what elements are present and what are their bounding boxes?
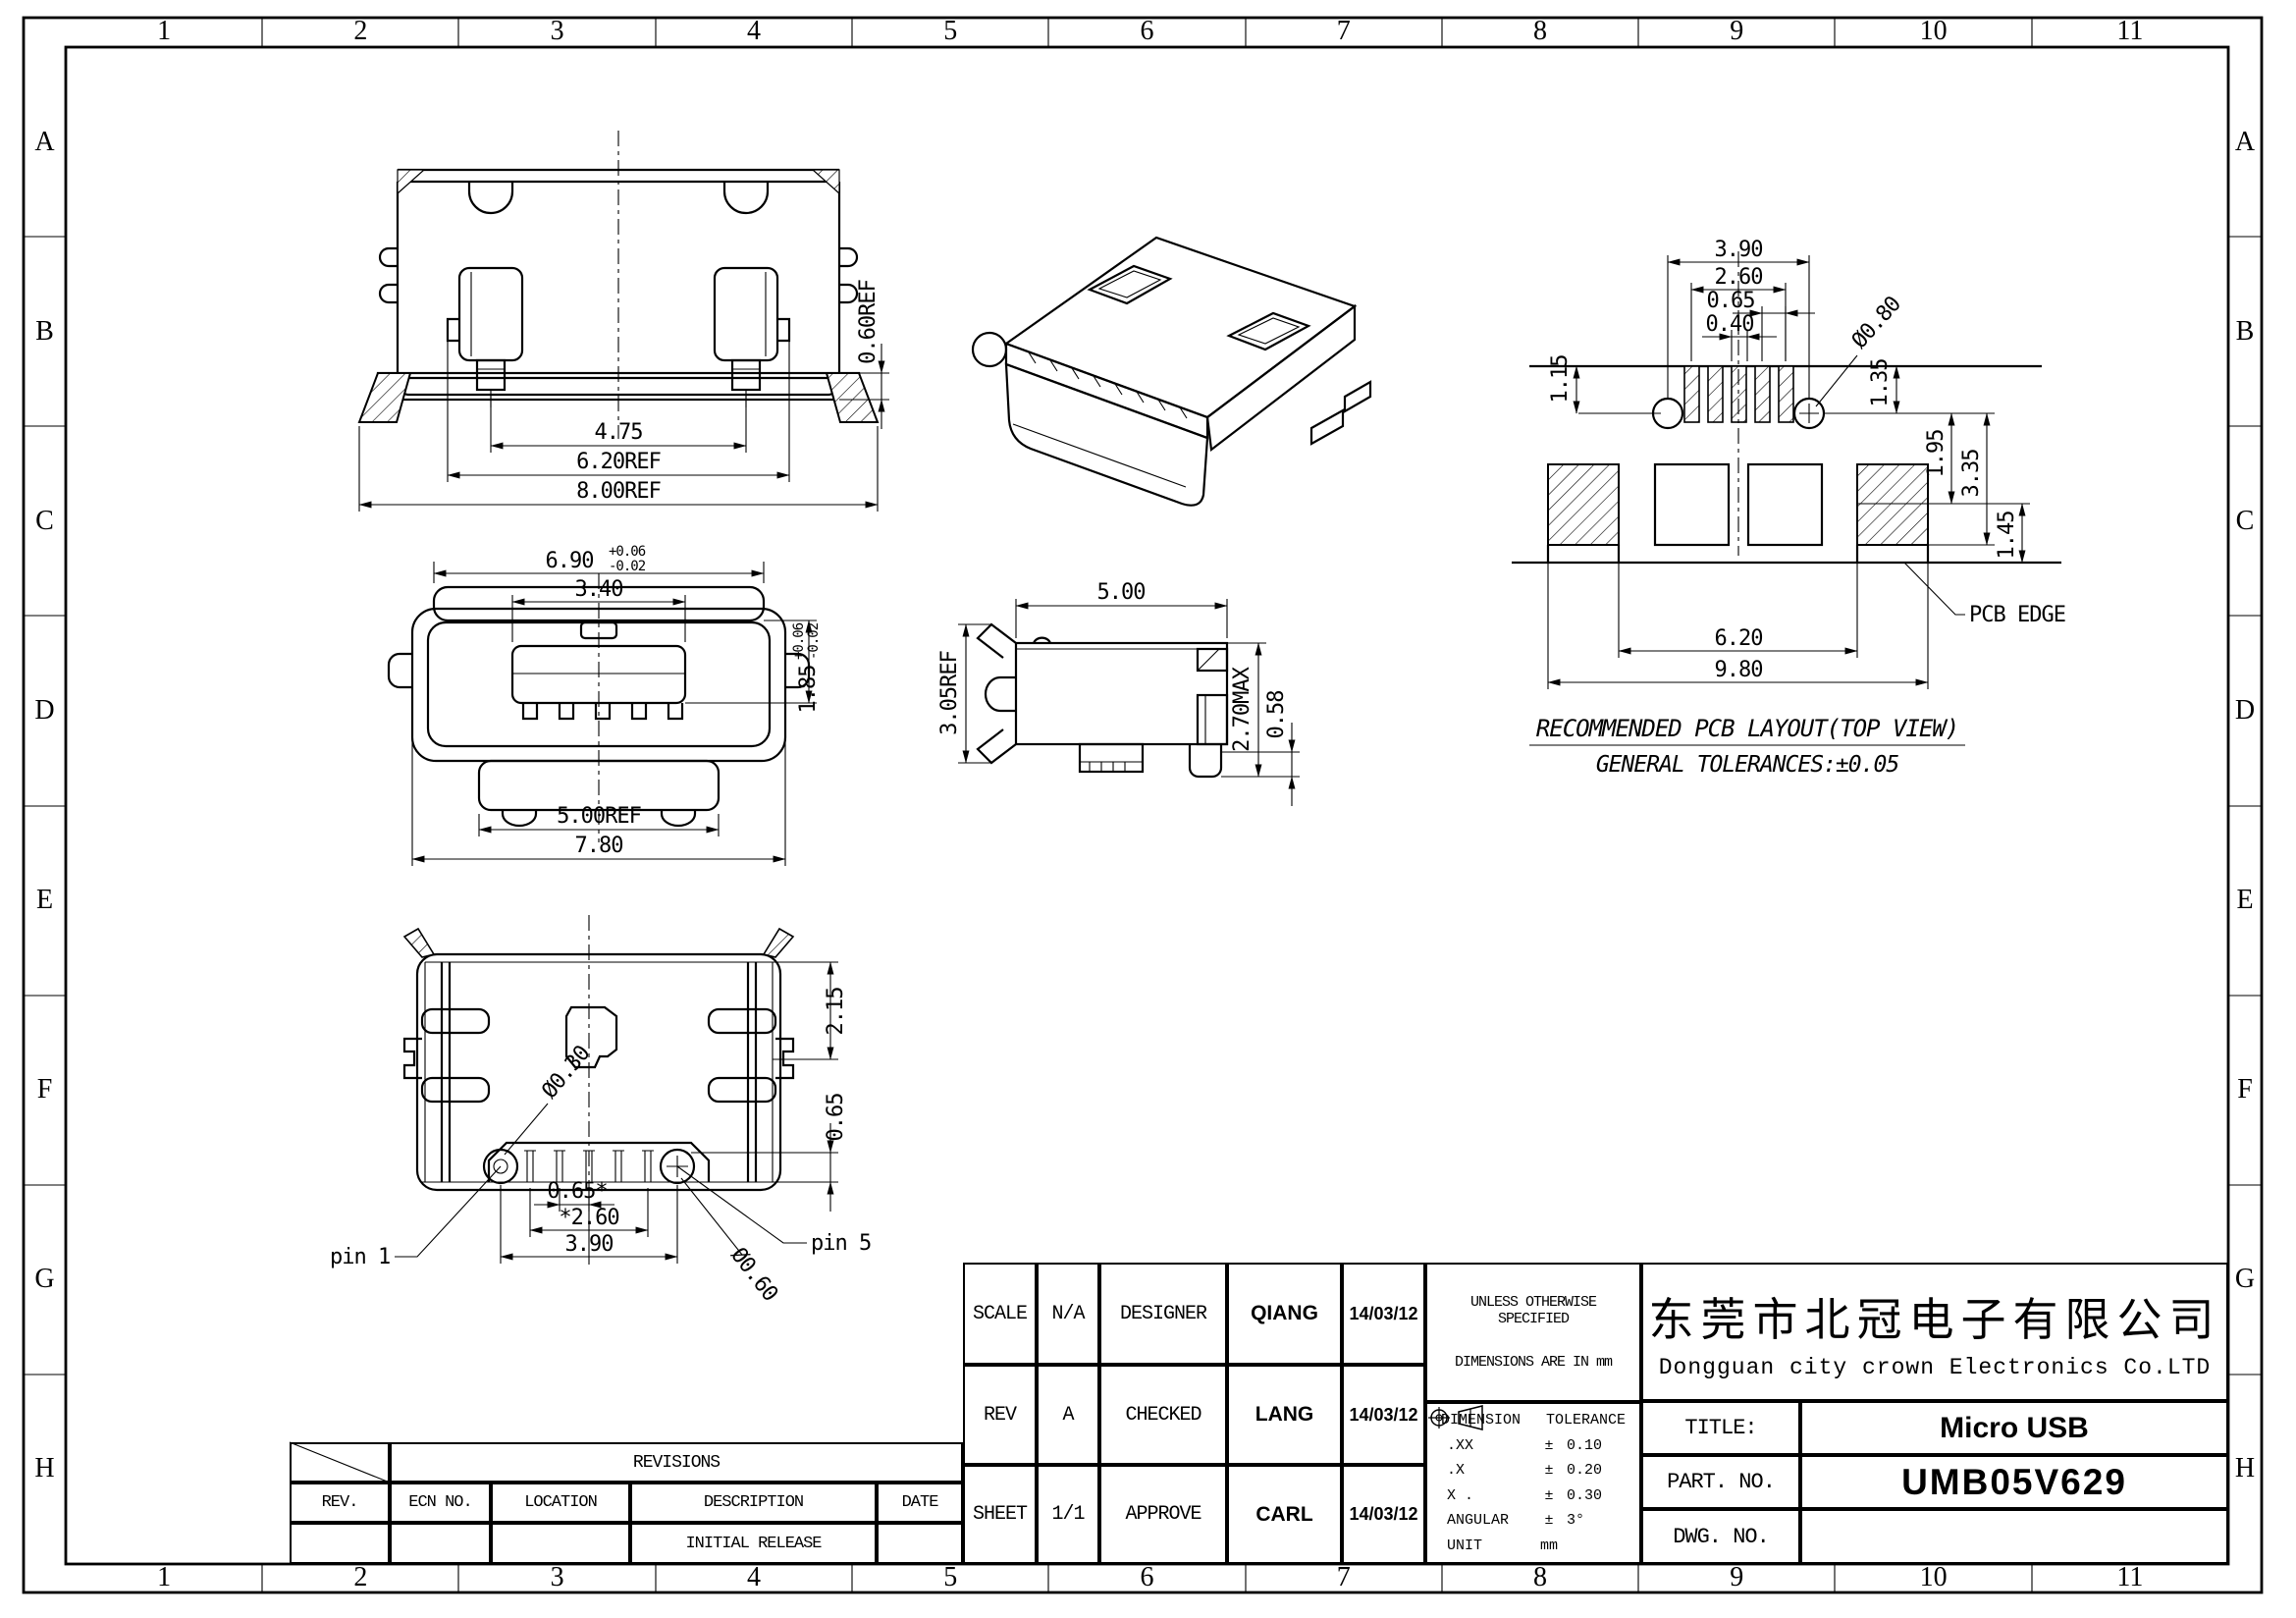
pcb-dim-pad-top: 1.95 xyxy=(1924,430,1949,478)
grid-col-bottom-11: 11 xyxy=(2032,1563,2228,1592)
side-dim-max-height: 2.70MAX xyxy=(1230,666,1255,751)
grid-col-bottom-9: 9 xyxy=(1638,1563,1835,1592)
mating-dim-height-tol-plus: +0.06 xyxy=(791,622,807,660)
grid-col-bottom-3: 3 xyxy=(459,1563,656,1592)
grid-col-bottom-2: 2 xyxy=(262,1563,458,1592)
bottom-dim-holes-span: 3.90 xyxy=(565,1232,614,1257)
side-dim-depth: 5.00 xyxy=(1097,580,1146,605)
tol-row: .XX ± 0.10 xyxy=(1435,1437,1631,1454)
mating-dim-shell-width: 6.90 xyxy=(546,549,594,573)
bottom-dim-shell: 2.15 xyxy=(824,988,848,1036)
pcb-tolerance-note: GENERAL TOLERANCES:±0.05 xyxy=(1596,752,1898,778)
designer-date: 14/03/12 xyxy=(1342,1263,1425,1365)
bottom-pin1-label: pin 1 xyxy=(330,1245,390,1269)
tol-sign: ± xyxy=(1531,1512,1567,1529)
grid-row-right-B: B xyxy=(2228,237,2262,426)
grid-col-bottom-1: 1 xyxy=(66,1563,262,1592)
rev-label: REV xyxy=(963,1365,1037,1465)
grid-row-left-G: G xyxy=(24,1185,66,1375)
sheet-value: 1/1 xyxy=(1037,1465,1099,1564)
scale-value: N/A xyxy=(1037,1263,1099,1365)
revisions-col-description: DESCRIPTION xyxy=(630,1483,877,1523)
tol-sign: ± xyxy=(1531,1437,1567,1454)
bottom-pin5-label: pin 5 xyxy=(811,1231,871,1256)
tol-row: .X ± 0.20 xyxy=(1435,1462,1631,1479)
company-name-en: Dongguan city crown Electronics Co.LTD xyxy=(1659,1355,2212,1380)
grid-col-top-2: 2 xyxy=(262,16,458,47)
pcb-dim-pad-bottom: 3.35 xyxy=(1959,450,1984,498)
grid-row-right-C: C xyxy=(2228,426,2262,616)
view-side: 5.00 3.05REF 2.70MAX 0.58 xyxy=(937,580,1300,806)
grid-col-bottom-8: 8 xyxy=(1442,1563,1638,1592)
tol-value: 0.10 xyxy=(1567,1437,1631,1454)
front-dim-inner-width: 6.20REF xyxy=(576,450,661,474)
b bottom-dim-pitch: 0.65* xyxy=(547,1179,607,1204)
pcb-dim-edge-gap: 1.45 xyxy=(1995,512,2019,560)
revision-row-location xyxy=(491,1523,630,1564)
tol-row: X . ± 0.30 xyxy=(1435,1487,1631,1504)
grid-col-top-8: 8 xyxy=(1442,16,1638,47)
tol-dim-xx: .XX xyxy=(1435,1437,1531,1454)
bottom-dim-pin-zone: 0.65 xyxy=(824,1094,848,1142)
dwg-no-label: DWG. NO. xyxy=(1641,1509,1800,1564)
grid-row-left-A: A xyxy=(24,47,66,237)
pcb-dim-hole-offset: 1.35 xyxy=(1868,359,1893,407)
mating-dim-opening-height: 1.85 xyxy=(796,666,821,714)
pcb-edge-label: PCB EDGE xyxy=(1969,603,2065,627)
view-isometric xyxy=(973,238,1370,506)
approve-label: APPROVE xyxy=(1099,1465,1227,1564)
grid-col-top-10: 10 xyxy=(1835,16,2031,47)
pcb-dim-inner-span: 6.20 xyxy=(1715,626,1763,651)
checked-label: CHECKED xyxy=(1099,1365,1227,1465)
revision-row-description: INITIAL RELEASE xyxy=(630,1523,877,1564)
tol-unit-label: UNIT xyxy=(1435,1537,1531,1554)
grid-row-left-F: F xyxy=(24,996,66,1185)
pcb-caption: RECOMMENDED PCB LAYOUT(TOP VIEW) xyxy=(1536,715,1958,742)
revisions-header: REVISIONS xyxy=(390,1442,963,1483)
revisions-col-rev: REV. xyxy=(290,1483,390,1523)
revisions-col-date: DATE xyxy=(877,1483,963,1523)
grid-row-left-D: D xyxy=(24,616,66,805)
mating-dim-shell-tol-minus: -0.02 xyxy=(609,559,646,574)
tol-sign: ± xyxy=(1531,1462,1567,1479)
pcb-dim-outer-span: 9.80 xyxy=(1715,658,1763,682)
grid-row-right-E: E xyxy=(2228,806,2262,996)
grid-row-left-C: C xyxy=(24,426,66,616)
front-dim-body-width: 8.00REF xyxy=(576,479,661,504)
bottom-dim-hole-big: Ø0.60 xyxy=(725,1243,781,1306)
tol-sign: ± xyxy=(1531,1487,1567,1504)
pcb-dim-pad-span: 2.60 xyxy=(1715,265,1763,290)
grid-col-bottom-4: 4 xyxy=(656,1563,852,1592)
grid-row-right-H: H xyxy=(2228,1375,2262,1564)
grid-row-left-B: B xyxy=(24,237,66,426)
side-dim-pin: 0.58 xyxy=(1264,691,1289,739)
part-no-value: UMB05V629 xyxy=(1800,1455,2228,1509)
revision-row-date xyxy=(877,1523,963,1564)
grid-row-right-G: G xyxy=(2228,1185,2262,1375)
part-no-label: PART. NO. xyxy=(1641,1455,1800,1509)
tol-value: 0.30 xyxy=(1567,1487,1631,1504)
grid-row-right-F: F xyxy=(2228,996,2262,1185)
tol-value: 3° xyxy=(1567,1512,1631,1529)
mating-dim-height-tol-minus: -0.02 xyxy=(806,622,822,660)
tol-unit-value: mm xyxy=(1531,1537,1567,1554)
front-dim-flange-step: 0.60REF xyxy=(856,280,881,364)
grid-col-top-9: 9 xyxy=(1638,16,1835,47)
revisions-col-ecn: ECN NO. xyxy=(390,1483,491,1523)
drawing-sheet: 4.75 6.20REF 8.00REF 0.60REF 6.90 +0.06 … xyxy=(0,0,2296,1618)
projection-symbol-icon xyxy=(1427,1404,1488,1431)
spec-note-line2: DIMENSIONS ARE IN mm xyxy=(1455,1354,1612,1371)
mating-dim-flange-width: 5.00REF xyxy=(557,804,641,829)
grid-col-bottom-7: 7 xyxy=(1246,1563,1442,1592)
pcb-dim-edge-to-hole: 1.15 xyxy=(1548,355,1573,404)
spec-note: UNLESS OTHERWISE SPECIFIED DIMENSIONS AR… xyxy=(1425,1263,1641,1402)
tol-row: ANGULAR ± 3° xyxy=(1435,1512,1631,1529)
designer-name: QIANG xyxy=(1227,1263,1342,1365)
view-bottom: 2.15 0.65 Ø0.30 pin 1 pin 5 Ø0.60 0.65* … xyxy=(330,915,871,1306)
grid-col-bottom-5: 5 xyxy=(852,1563,1048,1592)
pcb-dim-pitch: 0.65 xyxy=(1707,289,1755,313)
checked-date: 14/03/12 xyxy=(1342,1365,1425,1465)
grid-col-top-6: 6 xyxy=(1048,16,1245,47)
tol-dim-angular: ANGULAR xyxy=(1435,1512,1531,1529)
approve-name: CARL xyxy=(1227,1465,1342,1564)
scale-label: SCALE xyxy=(963,1263,1037,1365)
grid-row-left-E: E xyxy=(24,806,66,996)
grid-col-bottom-10: 10 xyxy=(1835,1563,2031,1592)
grid-col-top-4: 4 xyxy=(656,16,852,47)
title-label: TITLE: xyxy=(1641,1401,1800,1455)
designer-label: DESIGNER xyxy=(1099,1263,1227,1365)
checked-name: LANG xyxy=(1227,1365,1342,1465)
grid-row-right-D: D xyxy=(2228,616,2262,805)
revision-row-ecn xyxy=(390,1523,491,1564)
revision-row-rev xyxy=(290,1523,390,1564)
mating-dim-total-width: 7.80 xyxy=(575,834,623,858)
company-name-cn: 东莞市北冠电子有限公司 xyxy=(1649,1284,2221,1349)
tol-row-unit: UNIT mm xyxy=(1435,1537,1631,1554)
side-dim-height: 3.05REF xyxy=(937,651,962,735)
approve-date: 14/03/12 xyxy=(1342,1465,1425,1564)
sheet-label: SHEET xyxy=(963,1465,1037,1564)
revisions-col-location: LOCATION xyxy=(491,1483,630,1523)
grid-col-top-1: 1 xyxy=(66,16,262,47)
view-front: 4.75 6.20REF 8.00REF 0.60REF xyxy=(359,131,889,512)
view-mating: 6.90 +0.06 -0.02 3.40 1.85 +0.06 -0.02 5… xyxy=(389,544,822,866)
pcb-dim-hole-span: 3.90 xyxy=(1715,238,1763,262)
spec-note-line1: UNLESS OTHERWISE SPECIFIED xyxy=(1431,1294,1635,1327)
grid-col-top-7: 7 xyxy=(1246,16,1442,47)
grid-col-bottom-6: 6 xyxy=(1048,1563,1245,1592)
grid-col-top-5: 5 xyxy=(852,16,1048,47)
dwg-no-value xyxy=(1800,1509,2228,1564)
pcb-dim-hole-dia: Ø0.80 xyxy=(1847,293,1906,353)
tol-dim-whole: X . xyxy=(1435,1487,1531,1504)
tol-header-tolerance: TOLERANCE xyxy=(1546,1412,1626,1429)
tol-value: 0.20 xyxy=(1567,1462,1631,1479)
grid-row-left-H: H xyxy=(24,1375,66,1564)
grid-row-right-A: A xyxy=(2228,47,2262,237)
front-dim-pin-span: 4.75 xyxy=(595,420,643,445)
pcb-dim-pad-width: 0.40 xyxy=(1706,312,1754,337)
mating-dim-shell-tol-plus: +0.06 xyxy=(609,544,646,560)
revisions-corner-cell xyxy=(290,1442,390,1483)
bottom-dim-pins-span: *2.60 xyxy=(559,1206,618,1230)
grid-col-top-3: 3 xyxy=(459,16,656,47)
rev-value: A xyxy=(1037,1365,1099,1465)
tol-dim-x: .X xyxy=(1435,1462,1531,1479)
title-value: Micro USB xyxy=(1800,1401,2228,1455)
view-pcb-layout: 3.90 2.60 0.65 0.40 1.15 1.35 Ø0.80 1.95… xyxy=(1512,238,2065,778)
mating-dim-tongue-width: 3.40 xyxy=(575,577,623,602)
grid-col-top-11: 11 xyxy=(2032,16,2228,47)
tolerance-table: DIMENSION TOLERANCE .XX ± 0.10 .X ± 0.20… xyxy=(1425,1402,1641,1564)
company-block: 东莞市北冠电子有限公司 Dongguan city crown Electron… xyxy=(1641,1263,2228,1401)
